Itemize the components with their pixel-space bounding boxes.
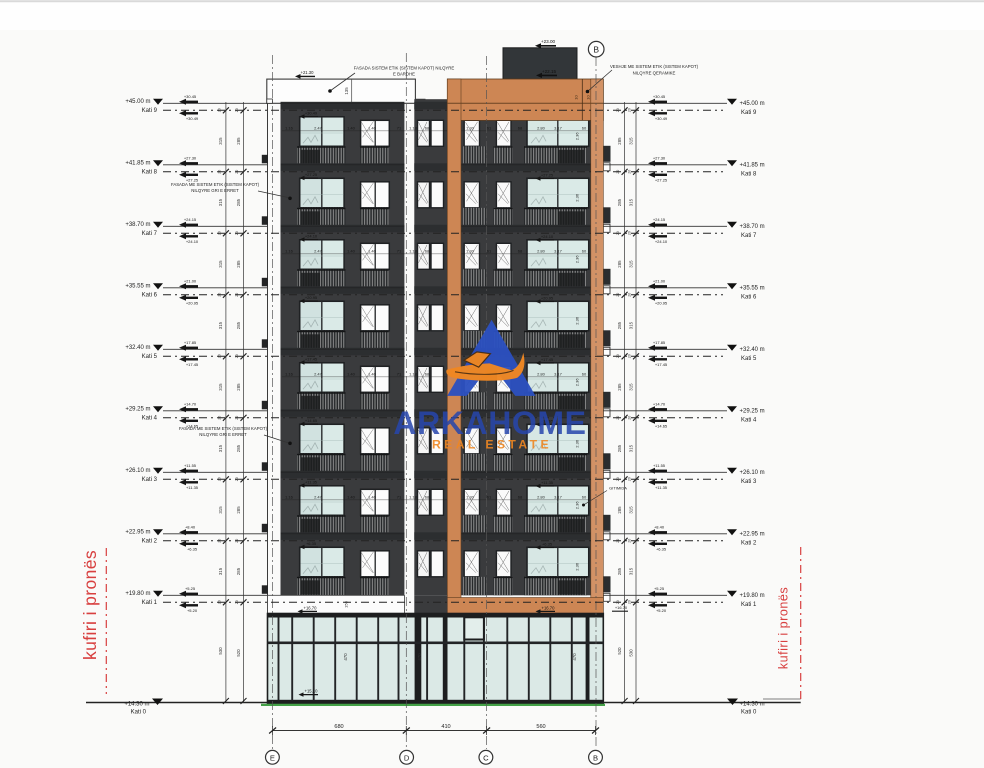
- svg-text:Kati 6: Kati 6: [142, 292, 158, 298]
- svg-text:315: 315: [218, 383, 223, 391]
- svg-text:+6.35: +6.35: [542, 542, 553, 547]
- svg-text:20: 20: [217, 539, 221, 543]
- svg-text:20: 20: [217, 416, 221, 420]
- svg-text:20: 20: [217, 600, 221, 604]
- svg-text:20: 20: [217, 477, 221, 481]
- svg-text:kufiri i pronës: kufiri i pronës: [80, 550, 100, 660]
- svg-text:20: 20: [628, 477, 632, 481]
- svg-text:1.18: 1.18: [409, 249, 418, 254]
- svg-text:D: D: [404, 753, 410, 762]
- svg-text:315: 315: [628, 383, 633, 391]
- svg-text:+45.00 m: +45.00 m: [125, 99, 150, 105]
- svg-text:71: 71: [397, 495, 402, 500]
- svg-text:Kati 9: Kati 9: [142, 108, 158, 114]
- svg-text:3.17: 3.17: [554, 249, 563, 254]
- svg-text:285: 285: [617, 506, 622, 514]
- svg-text:+6.35: +6.35: [187, 546, 198, 551]
- svg-text:61: 61: [487, 126, 492, 131]
- svg-text:+17.45: +17.45: [186, 362, 199, 367]
- svg-text:71: 71: [397, 126, 402, 131]
- svg-text:68: 68: [518, 126, 523, 131]
- svg-text:315: 315: [628, 444, 633, 452]
- svg-text:Kati 7: Kati 7: [142, 231, 158, 237]
- svg-text:20: 20: [217, 108, 221, 112]
- svg-text:60: 60: [582, 126, 587, 131]
- svg-text:+20.95: +20.95: [186, 300, 199, 305]
- svg-text:20: 20: [235, 416, 239, 420]
- svg-text:1.18: 1.18: [409, 495, 418, 500]
- svg-text:+24.10: +24.10: [655, 239, 668, 244]
- svg-text:+5.20: +5.20: [656, 608, 667, 613]
- svg-text:1.30: 1.30: [466, 249, 475, 254]
- svg-text:VESHJE ME SISTEM ETIK (SISTEM: VESHJE ME SISTEM ETIK (SISTEM KAPOT): [610, 64, 699, 69]
- svg-text:Kati 4: Kati 4: [741, 417, 757, 423]
- svg-text:20: 20: [616, 231, 620, 235]
- svg-text:68: 68: [425, 372, 430, 377]
- svg-text:20: 20: [235, 600, 239, 604]
- svg-text:Kati 5: Kati 5: [142, 354, 158, 360]
- svg-text:+24.10: +24.10: [541, 234, 554, 239]
- svg-text:+14.30 m: +14.30 m: [124, 702, 149, 708]
- svg-text:+17.85: +17.85: [653, 340, 666, 345]
- svg-text:2.36: 2.36: [575, 378, 580, 387]
- svg-text:285: 285: [236, 506, 241, 514]
- svg-text:+5.25: +5.25: [185, 586, 196, 591]
- svg-text:68: 68: [425, 249, 430, 254]
- svg-text:530: 530: [218, 647, 223, 655]
- svg-text:10: 10: [586, 95, 591, 100]
- svg-text:680: 680: [334, 724, 343, 730]
- svg-text:315: 315: [218, 137, 223, 145]
- svg-text:1.40: 1.40: [347, 495, 356, 500]
- svg-text:NILQYRE GRI E ERRET: NILQYRE GRI E ERRET: [191, 188, 239, 193]
- svg-text:3.17: 3.17: [554, 495, 563, 500]
- svg-text:3.17: 3.17: [554, 126, 563, 131]
- svg-text:60: 60: [582, 249, 587, 254]
- svg-text:60: 60: [582, 495, 587, 500]
- svg-text:+17.85: +17.85: [184, 340, 197, 345]
- svg-text:285: 285: [617, 198, 622, 206]
- svg-text:+30.45: +30.45: [184, 94, 197, 99]
- svg-text:Kati 3: Kati 3: [142, 477, 158, 483]
- svg-text:+16.70: +16.70: [615, 605, 628, 610]
- svg-text:+35.55 m: +35.55 m: [125, 283, 150, 289]
- svg-text:Kati 4: Kati 4: [142, 415, 158, 421]
- svg-text:Kati 2: Kati 2: [142, 538, 158, 544]
- svg-text:+21.30: +21.30: [301, 70, 315, 75]
- svg-text:+11.35: +11.35: [655, 485, 668, 490]
- svg-text:315: 315: [218, 444, 223, 452]
- svg-text:B: B: [593, 44, 599, 54]
- svg-text:315: 315: [628, 506, 633, 514]
- svg-text:+26.10 m: +26.10 m: [125, 468, 150, 474]
- svg-text:20: 20: [616, 354, 620, 358]
- svg-text:+16.70: +16.70: [304, 605, 318, 610]
- svg-text:71: 71: [397, 249, 402, 254]
- svg-text:1.16: 1.16: [285, 495, 294, 500]
- svg-text:20: 20: [217, 293, 221, 297]
- svg-text:20: 20: [616, 539, 620, 543]
- svg-text:+29.25 m: +29.25 m: [740, 408, 765, 414]
- svg-text:+27.25: +27.25: [541, 173, 554, 178]
- svg-text:2.80: 2.80: [537, 372, 546, 377]
- svg-text:B: B: [593, 753, 598, 762]
- svg-text:+30.45: +30.45: [653, 94, 666, 99]
- svg-text:20: 20: [235, 293, 239, 297]
- svg-text:+29.25 m: +29.25 m: [125, 406, 150, 412]
- svg-text:285: 285: [617, 260, 622, 268]
- svg-text:+17.45: +17.45: [655, 362, 668, 367]
- svg-text:+11.35: +11.35: [186, 485, 199, 490]
- svg-text:1.40: 1.40: [368, 126, 377, 131]
- svg-text:1.40: 1.40: [347, 126, 356, 131]
- svg-text:+30.49: +30.49: [186, 116, 199, 121]
- svg-text:+6.35: +6.35: [306, 541, 317, 546]
- svg-text:REAL ESTATE: REAL ESTATE: [432, 438, 552, 452]
- svg-text:1.40: 1.40: [368, 372, 377, 377]
- svg-text:Kati 5: Kati 5: [741, 356, 757, 362]
- svg-text:315: 315: [218, 567, 223, 575]
- svg-text:+20.95: +20.95: [541, 296, 554, 301]
- svg-text:285: 285: [617, 444, 622, 452]
- svg-text:+24.15: +24.15: [653, 217, 666, 222]
- svg-text:1.40: 1.40: [368, 495, 377, 500]
- svg-text:+19.80 m: +19.80 m: [740, 593, 765, 599]
- svg-text:+38.70 m: +38.70 m: [740, 224, 765, 230]
- svg-text:315: 315: [628, 198, 633, 206]
- svg-text:E BARDHE: E BARDHE: [393, 72, 415, 77]
- svg-text:20: 20: [235, 477, 239, 481]
- svg-text:+17.45: +17.45: [305, 357, 318, 362]
- svg-text:+17.45: +17.45: [541, 357, 554, 362]
- svg-text:1.16: 1.16: [285, 249, 294, 254]
- svg-text:+22.95 m: +22.95 m: [125, 529, 150, 535]
- svg-text:20: 20: [628, 293, 632, 297]
- svg-text:FASADA ME SISTEM ETIK (SISTEM: FASADA ME SISTEM ETIK (SISTEM KAPOT): [171, 182, 260, 187]
- svg-text:20: 20: [628, 416, 632, 420]
- svg-text:+27.25: +27.25: [655, 177, 668, 182]
- svg-text:+6.35: +6.35: [656, 546, 667, 551]
- svg-text:20: 20: [235, 539, 239, 543]
- svg-text:GITIMIDA: GITIMIDA: [609, 486, 627, 491]
- svg-text:135: 135: [344, 87, 349, 95]
- svg-text:315: 315: [218, 506, 223, 514]
- svg-text:20: 20: [628, 354, 632, 358]
- svg-text:+16.70: +16.70: [542, 605, 556, 610]
- svg-text:2.36: 2.36: [575, 193, 580, 202]
- svg-text:285: 285: [236, 383, 241, 391]
- svg-text:20: 20: [616, 108, 620, 112]
- svg-text:68: 68: [518, 495, 523, 500]
- svg-text:1.30: 1.30: [466, 495, 475, 500]
- svg-text:285: 285: [617, 567, 622, 575]
- svg-text:+32.40 m: +32.40 m: [125, 345, 150, 351]
- svg-text:+5.20: +5.20: [187, 608, 198, 613]
- svg-text:+41.85 m: +41.85 m: [125, 160, 150, 166]
- svg-text:410: 410: [441, 724, 450, 730]
- svg-text:520: 520: [617, 647, 622, 655]
- svg-text:+30.49: +30.49: [305, 111, 318, 116]
- svg-text:+14.65: +14.65: [655, 423, 668, 428]
- svg-text:+14.65: +14.65: [305, 418, 318, 423]
- svg-text:+22.15: +22.15: [542, 69, 557, 74]
- svg-text:20: 20: [616, 293, 620, 297]
- svg-text:1.40: 1.40: [347, 249, 356, 254]
- svg-text:2.36: 2.36: [575, 255, 580, 264]
- svg-text:1.16: 1.16: [285, 126, 294, 131]
- svg-text:Kati 3: Kati 3: [741, 479, 757, 485]
- svg-text:3.17: 3.17: [554, 372, 563, 377]
- svg-text:NILQYRE GRI E ERRET: NILQYRE GRI E ERRET: [199, 432, 247, 437]
- svg-text:E: E: [270, 753, 275, 762]
- svg-text:1.18: 1.18: [409, 126, 418, 131]
- svg-text:20: 20: [235, 108, 239, 112]
- svg-text:530: 530: [628, 649, 633, 657]
- svg-text:71: 71: [397, 372, 402, 377]
- svg-text:20: 20: [616, 416, 620, 420]
- svg-text:C: C: [483, 753, 489, 762]
- svg-text:Kati 6: Kati 6: [741, 294, 757, 300]
- svg-text:20: 20: [235, 170, 239, 174]
- svg-text:ARKAHOME: ARKAHOME: [393, 405, 586, 441]
- svg-text:+21.00: +21.00: [184, 278, 197, 283]
- svg-text:1.40: 1.40: [347, 372, 356, 377]
- svg-text:+11.35: +11.35: [305, 480, 318, 485]
- svg-text:+20.95: +20.95: [305, 295, 318, 300]
- svg-text:285: 285: [617, 383, 622, 391]
- svg-text:+27.30: +27.30: [653, 155, 666, 160]
- svg-text:520: 520: [236, 649, 241, 657]
- svg-text:2.47: 2.47: [314, 495, 323, 500]
- svg-text:68: 68: [425, 495, 430, 500]
- svg-text:+21.00: +21.00: [653, 278, 666, 283]
- svg-text:Kati 0: Kati 0: [131, 710, 147, 716]
- svg-text:20: 20: [616, 170, 620, 174]
- svg-text:2.47: 2.47: [314, 126, 323, 131]
- svg-text:315: 315: [628, 260, 633, 268]
- svg-text:68: 68: [425, 126, 430, 131]
- svg-text:+14.70: +14.70: [653, 401, 666, 406]
- svg-text:315: 315: [218, 260, 223, 268]
- svg-text:+11.35: +11.35: [541, 480, 554, 485]
- svg-text:Kati 0: Kati 0: [741, 710, 757, 716]
- svg-text:+22.95 m: +22.95 m: [740, 531, 765, 537]
- svg-text:285: 285: [236, 260, 241, 268]
- svg-text:Kati 8: Kati 8: [142, 169, 158, 175]
- svg-text:285: 285: [236, 137, 241, 145]
- svg-text:68: 68: [518, 249, 523, 254]
- svg-text:+23.00: +23.00: [541, 39, 556, 44]
- svg-text:+41.85 m: +41.85 m: [740, 162, 765, 168]
- svg-text:2.36: 2.36: [575, 316, 580, 325]
- svg-text:+8.40: +8.40: [185, 524, 196, 529]
- svg-text:+45.00 m: +45.00 m: [740, 101, 765, 107]
- svg-text:+14.70: +14.70: [184, 401, 197, 406]
- svg-text:20: 20: [616, 600, 620, 604]
- svg-text:150: 150: [344, 600, 349, 607]
- svg-text:20: 20: [217, 354, 221, 358]
- svg-text:20: 20: [628, 539, 632, 543]
- svg-text:+15.10: +15.10: [305, 689, 319, 694]
- svg-text:Kati 1: Kati 1: [741, 602, 757, 608]
- svg-text:315: 315: [628, 321, 633, 329]
- svg-text:315: 315: [628, 137, 633, 145]
- svg-text:+14.30 m: +14.30 m: [740, 702, 765, 708]
- svg-text:285: 285: [236, 198, 241, 206]
- svg-text:2.80: 2.80: [537, 249, 546, 254]
- svg-text:+24.10: +24.10: [305, 234, 318, 239]
- svg-text:2.36: 2.36: [575, 132, 580, 141]
- svg-text:Kati 8: Kati 8: [741, 171, 757, 177]
- svg-text:20: 20: [628, 600, 632, 604]
- svg-text:kufiri i pronës: kufiri i pronës: [777, 587, 791, 669]
- svg-text:+30.49: +30.49: [655, 116, 668, 121]
- svg-text:315: 315: [628, 567, 633, 575]
- svg-text:+27.30: +27.30: [184, 155, 197, 160]
- svg-text:Kati 9: Kati 9: [741, 110, 757, 116]
- svg-text:285: 285: [236, 567, 241, 575]
- svg-text:+26.10 m: +26.10 m: [740, 470, 765, 476]
- svg-text:1.30: 1.30: [466, 126, 475, 131]
- svg-text:20: 20: [616, 477, 620, 481]
- svg-text:+35.55 m: +35.55 m: [740, 285, 765, 291]
- svg-text:20: 20: [235, 231, 239, 235]
- svg-text:2.80: 2.80: [537, 495, 546, 500]
- svg-text:315: 315: [218, 198, 223, 206]
- svg-text:60: 60: [582, 372, 587, 377]
- svg-text:20: 20: [217, 170, 221, 174]
- svg-text:285: 285: [236, 321, 241, 329]
- svg-text:61: 61: [487, 495, 492, 500]
- svg-text:285: 285: [236, 444, 241, 452]
- svg-text:20: 20: [628, 231, 632, 235]
- svg-text:2.36: 2.36: [575, 562, 580, 571]
- svg-text:20: 20: [217, 231, 221, 235]
- svg-text:2.80: 2.80: [537, 126, 546, 131]
- svg-text:1.18: 1.18: [409, 372, 418, 377]
- svg-text:+11.55: +11.55: [184, 463, 197, 468]
- svg-text:1.40: 1.40: [368, 249, 377, 254]
- svg-text:Kati 2: Kati 2: [741, 540, 757, 546]
- svg-text:+38.70 m: +38.70 m: [125, 222, 150, 228]
- svg-text:315: 315: [218, 321, 223, 329]
- svg-text:285: 285: [617, 137, 622, 145]
- svg-text:20: 20: [628, 170, 632, 174]
- svg-text:+5.25: +5.25: [654, 586, 665, 591]
- svg-text:20: 20: [628, 108, 632, 112]
- svg-text:2.36: 2.36: [575, 501, 580, 510]
- svg-text:+24.10: +24.10: [186, 239, 199, 244]
- svg-text:61: 61: [487, 249, 492, 254]
- svg-text:10: 10: [574, 95, 579, 100]
- svg-text:+32.40 m: +32.40 m: [740, 347, 765, 353]
- svg-text:560: 560: [536, 724, 545, 730]
- svg-text:20: 20: [235, 354, 239, 358]
- svg-text:+20.95: +20.95: [655, 300, 668, 305]
- svg-text:NILQYRE QERAMIKE: NILQYRE QERAMIKE: [633, 71, 676, 76]
- svg-text:470: 470: [572, 653, 577, 661]
- svg-text:+19.80 m: +19.80 m: [125, 591, 150, 597]
- svg-text:+11.55: +11.55: [653, 463, 666, 468]
- svg-text:285: 285: [617, 321, 622, 329]
- svg-text:470: 470: [417, 653, 422, 661]
- svg-text:+24.15: +24.15: [184, 217, 197, 222]
- svg-text:+8.40: +8.40: [654, 524, 665, 529]
- svg-text:Kati 1: Kati 1: [142, 600, 158, 606]
- svg-text:2.47: 2.47: [314, 372, 323, 377]
- svg-text:Kati 7: Kati 7: [741, 233, 757, 239]
- svg-text:+27.25: +27.25: [305, 172, 318, 177]
- svg-text:FASADA SISTEM ETIK (SISTEM KAP: FASADA SISTEM ETIK (SISTEM KAPOT) NILQYR…: [354, 66, 455, 71]
- svg-text:1.16: 1.16: [285, 372, 294, 377]
- svg-text:470: 470: [343, 653, 348, 661]
- svg-text:2.47: 2.47: [314, 249, 323, 254]
- svg-text:FASADA ME SISTEM ETIK (SISTEM: FASADA ME SISTEM ETIK (SISTEM KAPOT): [179, 426, 268, 431]
